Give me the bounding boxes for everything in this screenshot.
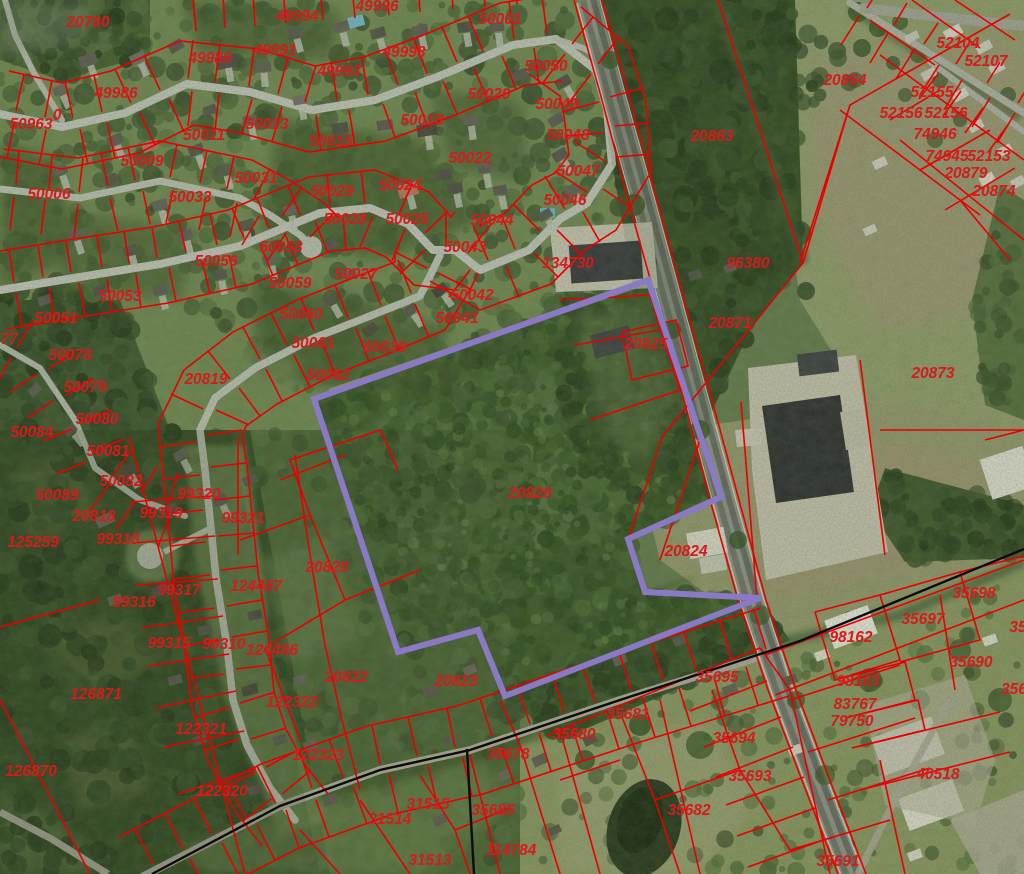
svg-text:124486: 124486 [246, 642, 298, 659]
svg-text:50047: 50047 [556, 163, 600, 180]
svg-text:31515: 31515 [406, 796, 449, 813]
svg-text:52156: 52156 [924, 105, 967, 122]
svg-text:74946: 74946 [913, 126, 956, 143]
svg-text:31513: 31513 [408, 852, 451, 869]
svg-text:20864: 20864 [822, 72, 866, 89]
svg-text:99317: 99317 [157, 582, 201, 599]
svg-text:20823: 20823 [433, 673, 477, 690]
svg-text:83767: 83767 [833, 696, 877, 713]
svg-text:96380: 96380 [726, 255, 769, 272]
svg-text:40518: 40518 [915, 766, 959, 783]
svg-text:20819: 20819 [183, 371, 227, 388]
svg-text:35690: 35690 [949, 654, 992, 671]
svg-text:50084: 50084 [10, 424, 53, 441]
svg-text:20824: 20824 [663, 543, 707, 560]
svg-text:126870: 126870 [5, 763, 57, 780]
svg-text:98162: 98162 [829, 629, 872, 646]
svg-text:134730: 134730 [542, 255, 594, 272]
svg-text:50020: 50020 [467, 86, 510, 103]
svg-text:50022: 50022 [448, 150, 491, 167]
svg-text:49986: 49986 [93, 85, 137, 102]
svg-text:50006: 50006 [27, 186, 70, 203]
svg-text:20825: 20825 [623, 336, 667, 353]
svg-text:35691: 35691 [816, 853, 859, 870]
svg-text:50963: 50963 [9, 116, 52, 133]
svg-text:52104: 52104 [936, 35, 979, 52]
svg-text:50049: 50049 [535, 96, 578, 113]
svg-text:35: 35 [1009, 619, 1024, 636]
svg-text:50058: 50058 [259, 239, 302, 256]
svg-text:50061: 50061 [291, 335, 334, 352]
svg-text:50001: 50001 [478, 11, 521, 28]
svg-text:49994: 49994 [274, 8, 318, 25]
svg-text:20818: 20818 [71, 508, 115, 525]
svg-text:122323: 122323 [292, 747, 344, 764]
svg-text:50009: 50009 [120, 153, 163, 170]
svg-text:50059: 50059 [268, 275, 311, 292]
svg-text:50044: 50044 [470, 212, 513, 229]
svg-text:99319: 99319 [139, 505, 182, 522]
svg-text:50025: 50025 [385, 211, 428, 228]
svg-text:50089: 50089 [35, 487, 78, 504]
svg-text:20820: 20820 [304, 559, 348, 576]
svg-text:50050: 50050 [524, 58, 567, 75]
svg-text:20874: 20874 [971, 183, 1015, 200]
svg-text:50039: 50039 [363, 339, 406, 356]
svg-text:50031: 50031 [234, 170, 277, 187]
svg-text:20863: 20863 [689, 128, 733, 145]
svg-text:50043: 50043 [443, 239, 486, 256]
svg-text:50079: 50079 [63, 379, 106, 396]
svg-text:50013: 50013 [245, 116, 288, 133]
svg-text:50080: 50080 [75, 411, 118, 428]
svg-text:122322: 122322 [266, 694, 318, 711]
svg-text:356: 356 [1001, 681, 1024, 698]
svg-text:50078: 50078 [48, 347, 91, 364]
svg-text:122320: 122320 [196, 783, 248, 800]
svg-text:99318: 99318 [96, 531, 139, 548]
svg-text:20879: 20879 [943, 165, 987, 182]
svg-text:50081: 50081 [86, 443, 129, 460]
svg-text:52156: 52156 [879, 105, 922, 122]
svg-text:74945: 74945 [925, 148, 968, 165]
svg-text:50082: 50082 [99, 473, 142, 490]
svg-text:52107: 52107 [964, 53, 1008, 70]
svg-text:50015: 50015 [309, 133, 352, 150]
svg-text:50011: 50011 [183, 127, 225, 144]
svg-text:35680: 35680 [552, 726, 595, 743]
svg-text:49989: 49989 [187, 50, 231, 67]
svg-text:35678: 35678 [486, 746, 529, 763]
svg-text:0: 0 [53, 107, 62, 124]
svg-text:35698: 35698 [952, 585, 995, 602]
svg-text:122321: 122321 [175, 721, 227, 738]
svg-text:35694: 35694 [712, 730, 755, 747]
svg-text:31514: 31514 [368, 811, 411, 828]
svg-text:20826: 20826 [507, 485, 551, 502]
svg-text:99310: 99310 [202, 636, 245, 653]
svg-text:50024: 50024 [378, 177, 421, 194]
svg-text:99315: 99315 [147, 635, 190, 652]
svg-text:50053: 50053 [98, 288, 141, 305]
svg-text:99321: 99321 [221, 510, 264, 527]
svg-text:114784: 114784 [486, 842, 537, 859]
svg-text:20780: 20780 [65, 14, 109, 31]
svg-text:077: 077 [0, 331, 19, 348]
svg-text:50042: 50042 [450, 287, 493, 304]
svg-text:20871: 20871 [707, 315, 751, 332]
svg-text:50048: 50048 [546, 127, 589, 144]
svg-text:50041: 50041 [435, 310, 478, 327]
svg-text:50033: 50033 [168, 189, 211, 206]
svg-text:49998: 49998 [381, 44, 425, 61]
svg-text:50056: 50056 [194, 253, 237, 270]
svg-text:50027: 50027 [334, 266, 378, 283]
svg-text:20822: 20822 [323, 669, 367, 686]
svg-text:20873: 20873 [910, 365, 954, 382]
svg-text:126871: 126871 [70, 686, 122, 703]
svg-text:50062: 50062 [306, 367, 349, 384]
svg-text:35685: 35685 [471, 802, 514, 819]
svg-text:35681: 35681 [606, 706, 649, 723]
svg-text:35695: 35695 [695, 669, 738, 686]
svg-text:35697: 35697 [901, 611, 945, 628]
svg-text:49996: 49996 [354, 0, 398, 15]
svg-text:50028: 50028 [323, 211, 366, 228]
svg-text:52155: 52155 [910, 84, 953, 101]
svg-text:50029: 50029 [310, 183, 353, 200]
svg-text:124487: 124487 [230, 578, 283, 595]
svg-text:49993: 49993 [316, 63, 360, 80]
svg-text:50018: 50018 [400, 112, 443, 129]
svg-text:125259: 125259 [7, 534, 59, 551]
svg-text:50046: 50046 [543, 192, 586, 209]
svg-text:35693: 35693 [728, 768, 771, 785]
svg-text:52153: 52153 [967, 148, 1010, 165]
svg-text:99320: 99320 [177, 486, 220, 503]
svg-text:98163: 98163 [836, 673, 879, 690]
svg-text:79750: 79750 [830, 713, 873, 730]
svg-text:35682: 35682 [667, 802, 710, 819]
svg-text:50051: 50051 [34, 310, 77, 327]
svg-text:99316: 99316 [112, 594, 155, 611]
svg-text:49991: 49991 [252, 42, 296, 59]
svg-text:50060: 50060 [279, 306, 322, 323]
